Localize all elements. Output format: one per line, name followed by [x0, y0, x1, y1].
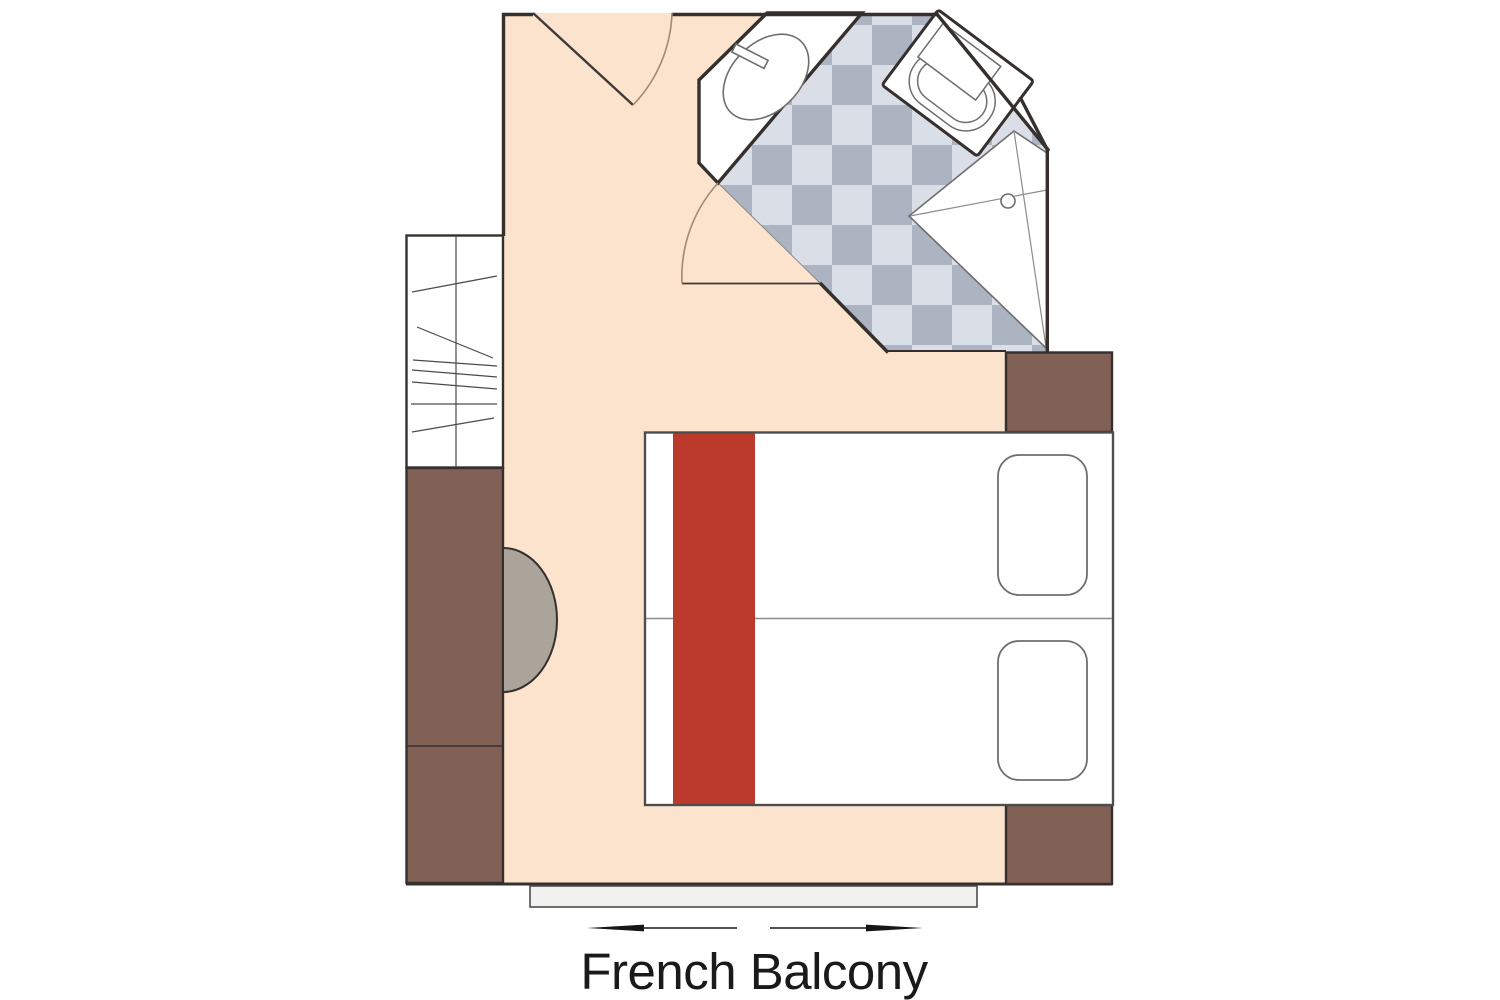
- sliding-door-arrows-icon: [587, 925, 923, 932]
- pillow-icon: [998, 641, 1087, 780]
- bed-runner: [673, 434, 755, 805]
- balcony-sill: [530, 886, 977, 907]
- wardrobe-icon: [407, 236, 504, 468]
- twin-beds-icon: [645, 433, 1113, 806]
- floor-plan-page: French Balcony: [0, 0, 1500, 1000]
- pillow-icon: [998, 455, 1087, 595]
- right-lower-wall-block: [1006, 805, 1112, 884]
- plan-label: French Balcony: [554, 942, 954, 1000]
- right-upper-wall-block: [1006, 353, 1112, 433]
- left-wall-block: [407, 468, 504, 883]
- floor-plan-drawing: [0, 0, 1500, 1000]
- shower-drain: [1001, 194, 1015, 208]
- balcony: [530, 886, 977, 931]
